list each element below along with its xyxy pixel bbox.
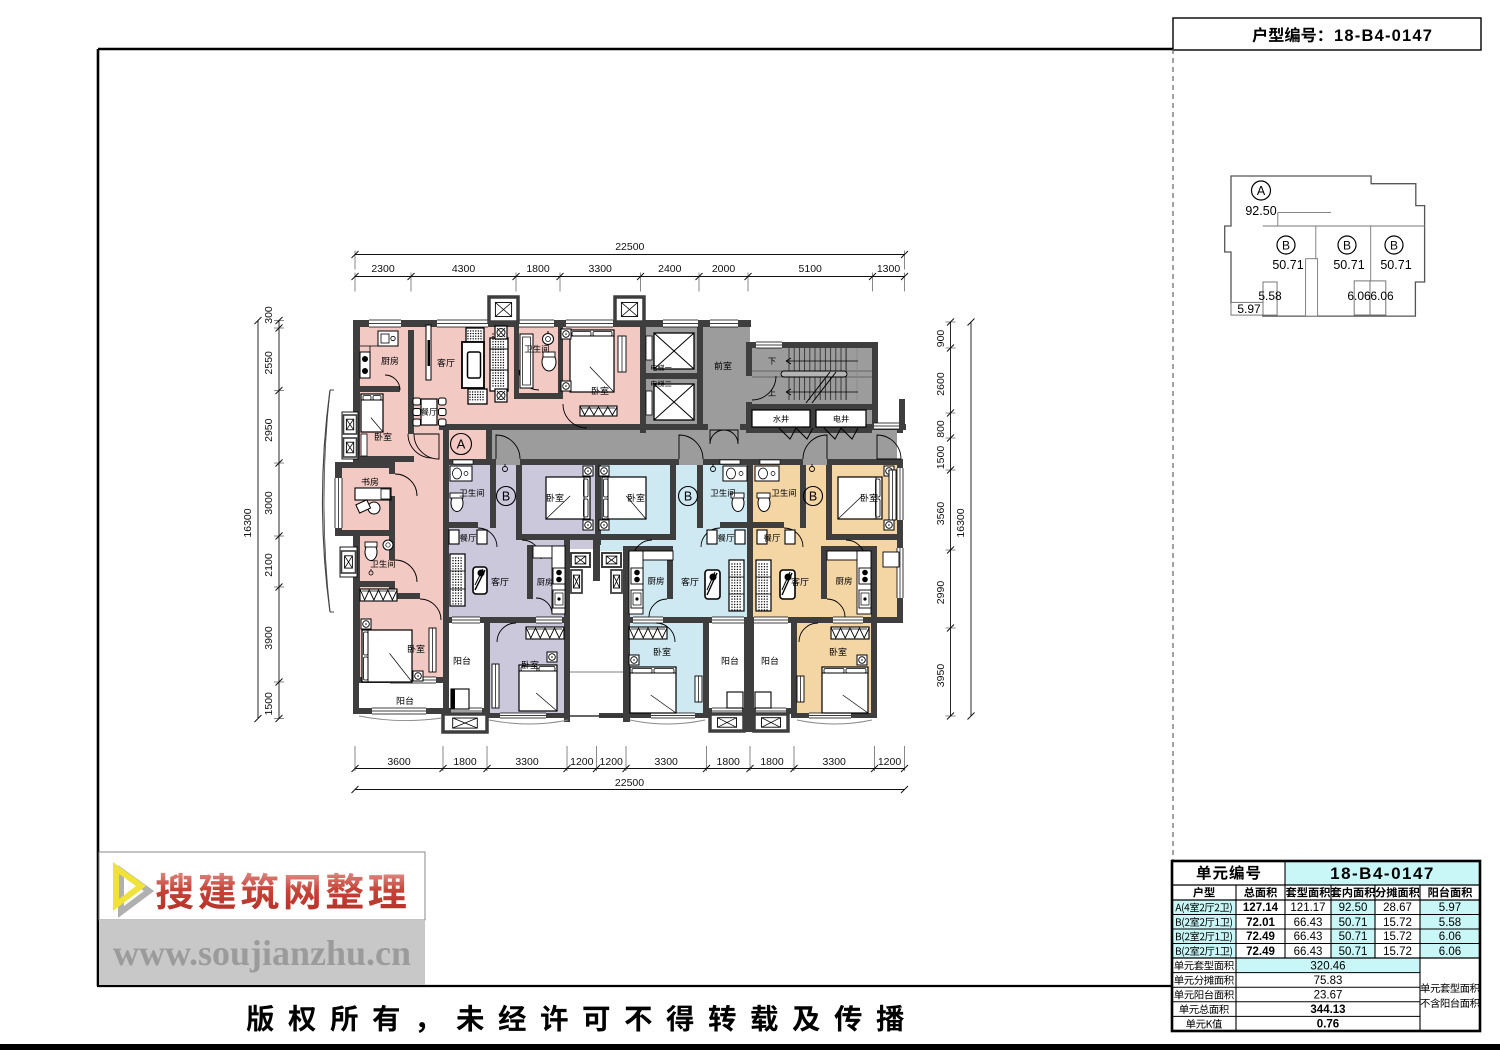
svg-text:5.58: 5.58 <box>1439 917 1461 929</box>
svg-text:1500: 1500 <box>263 692 275 716</box>
svg-text:1800: 1800 <box>526 263 550 275</box>
svg-text:1200: 1200 <box>878 756 902 768</box>
svg-text:1500: 1500 <box>935 446 947 470</box>
svg-text:15.72: 15.72 <box>1383 931 1412 943</box>
svg-text:2000: 2000 <box>712 263 736 275</box>
svg-text:23.67: 23.67 <box>1314 990 1343 1002</box>
svg-text:16300: 16300 <box>955 508 967 537</box>
svg-text:28.67: 28.67 <box>1383 902 1412 914</box>
svg-text:1300: 1300 <box>877 263 901 275</box>
svg-text:2950: 2950 <box>263 418 275 442</box>
svg-text:3900: 3900 <box>263 626 275 650</box>
svg-text:2100: 2100 <box>263 553 275 577</box>
svg-text:1200: 1200 <box>570 756 594 768</box>
svg-text:66.43: 66.43 <box>1294 917 1323 929</box>
svg-text:3560: 3560 <box>935 502 947 526</box>
svg-text:50.71: 50.71 <box>1380 258 1411 272</box>
svg-text:5100: 5100 <box>799 263 823 275</box>
svg-text:344.13: 344.13 <box>1310 1004 1345 1016</box>
svg-text:50.71: 50.71 <box>1333 258 1364 272</box>
svg-text:50.71: 50.71 <box>1272 258 1303 272</box>
svg-text:B: B <box>502 490 510 504</box>
svg-text:2550: 2550 <box>263 351 275 375</box>
svg-text:3950: 3950 <box>935 664 947 688</box>
svg-text:3300: 3300 <box>655 756 679 768</box>
svg-text:6.06: 6.06 <box>1347 289 1371 303</box>
svg-text:66.43: 66.43 <box>1294 931 1323 943</box>
svg-text:15.72: 15.72 <box>1383 917 1412 929</box>
svg-text:3300: 3300 <box>515 756 539 768</box>
svg-text:121.17: 121.17 <box>1290 902 1325 914</box>
svg-text:5.97: 5.97 <box>1237 302 1261 316</box>
svg-text:92.50: 92.50 <box>1245 204 1276 218</box>
svg-text:5.97: 5.97 <box>1439 902 1461 914</box>
svg-text:B: B <box>809 490 817 504</box>
svg-text:1800: 1800 <box>760 756 784 768</box>
svg-text:22500: 22500 <box>615 777 644 789</box>
svg-text:3300: 3300 <box>589 263 613 275</box>
svg-text:0.76: 0.76 <box>1317 1019 1339 1031</box>
svg-text:2600: 2600 <box>935 372 947 396</box>
svg-text:B: B <box>1343 238 1351 252</box>
svg-text:50.71: 50.71 <box>1339 931 1368 943</box>
svg-text:2300: 2300 <box>371 263 395 275</box>
svg-text:50.71: 50.71 <box>1339 917 1368 929</box>
svg-text:2400: 2400 <box>658 263 682 275</box>
svg-text:800: 800 <box>935 420 947 438</box>
svg-text:320.46: 320.46 <box>1310 960 1345 972</box>
svg-text:6.06: 6.06 <box>1370 289 1394 303</box>
svg-text:1800: 1800 <box>453 756 477 768</box>
svg-text:3600: 3600 <box>387 756 411 768</box>
svg-text:5.58: 5.58 <box>1258 289 1282 303</box>
svg-text:127.14: 127.14 <box>1243 902 1279 914</box>
svg-text:50.71: 50.71 <box>1339 946 1368 958</box>
svg-text:www.soujianzhu.cn: www.soujianzhu.cn <box>113 933 411 973</box>
svg-text:92.50: 92.50 <box>1339 902 1368 914</box>
svg-text:15.72: 15.72 <box>1383 946 1412 958</box>
svg-text:75.83: 75.83 <box>1314 975 1343 987</box>
svg-text:16300: 16300 <box>242 508 254 537</box>
svg-text:300: 300 <box>263 306 275 324</box>
svg-text:6.06: 6.06 <box>1439 931 1461 943</box>
svg-text:900: 900 <box>935 330 947 348</box>
svg-text:A: A <box>1257 184 1266 198</box>
svg-text:B: B <box>684 490 692 504</box>
svg-text:2990: 2990 <box>935 581 947 605</box>
svg-text:22500: 22500 <box>615 241 644 253</box>
svg-text:1800: 1800 <box>717 756 741 768</box>
svg-text:6.06: 6.06 <box>1439 946 1461 958</box>
svg-text:B: B <box>1282 238 1290 252</box>
svg-text:72.01: 72.01 <box>1246 917 1275 929</box>
svg-text:72.49: 72.49 <box>1246 931 1275 943</box>
svg-text:3000: 3000 <box>263 491 275 515</box>
svg-text:1200: 1200 <box>600 756 624 768</box>
svg-text:18-B4-0147: 18-B4-0147 <box>1330 864 1435 883</box>
svg-text:18-B4-0147: 18-B4-0147 <box>1334 27 1433 45</box>
svg-text:66.43: 66.43 <box>1294 946 1323 958</box>
svg-text:3300: 3300 <box>823 756 847 768</box>
svg-text:A: A <box>457 437 466 452</box>
svg-text:72.49: 72.49 <box>1246 946 1275 958</box>
svg-text:4300: 4300 <box>452 263 476 275</box>
svg-text:B: B <box>1390 238 1398 252</box>
